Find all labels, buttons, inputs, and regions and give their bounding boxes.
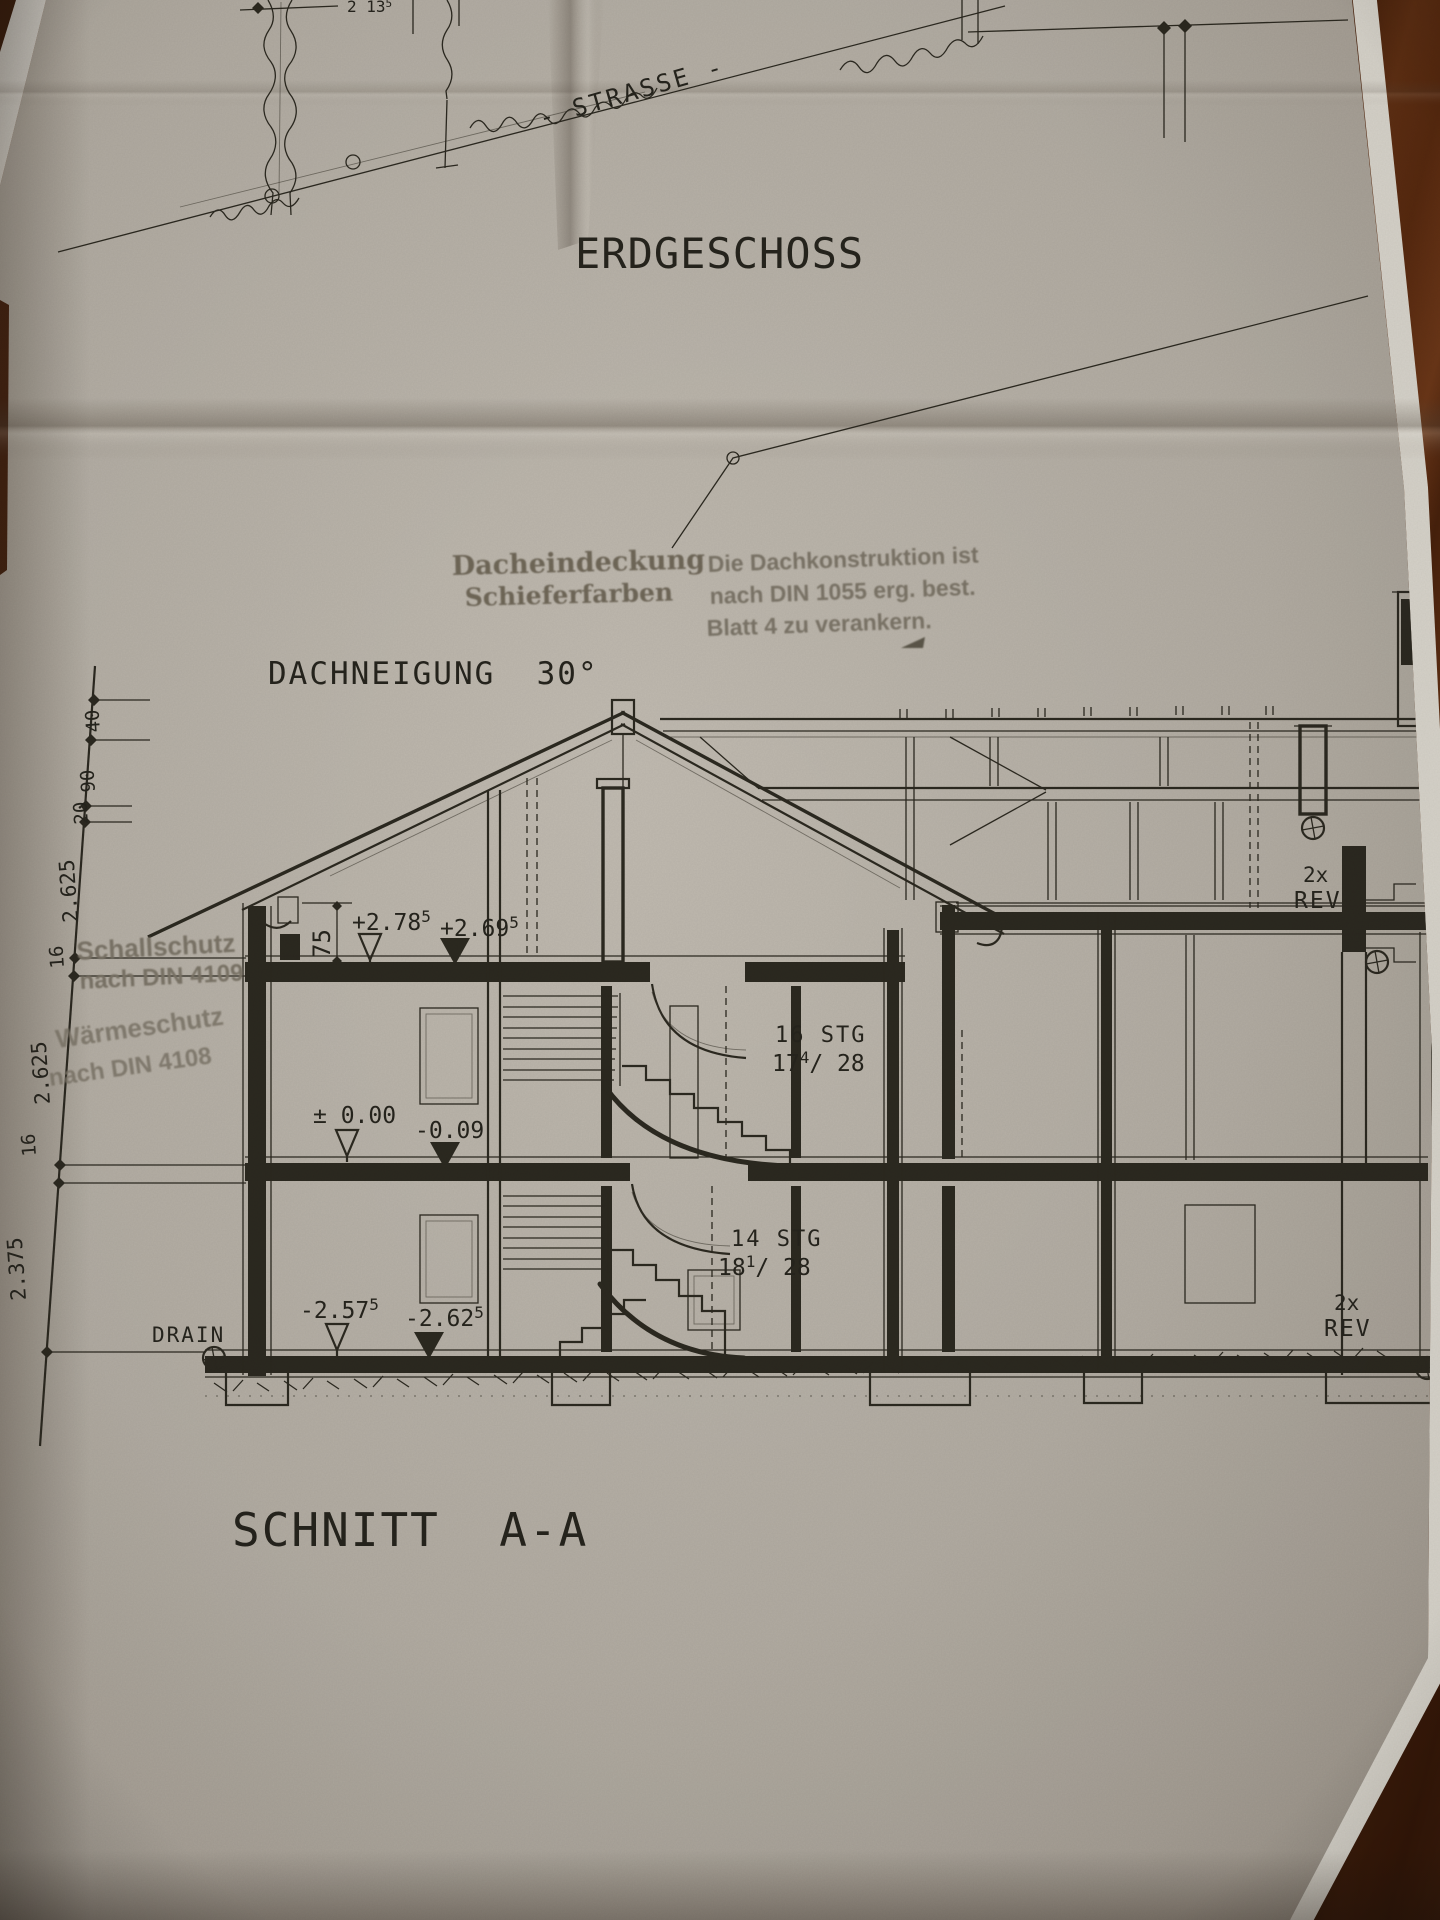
vignette (0, 0, 1440, 1920)
photo-of-architectural-section-drawing: 2 135 - STRASSE - ERDGESCHOSS DACHNEIGUN… (0, 0, 1440, 1920)
blueprint-photo-canvas: 2 135 - STRASSE - ERDGESCHOSS DACHNEIGUN… (0, 0, 1440, 1920)
